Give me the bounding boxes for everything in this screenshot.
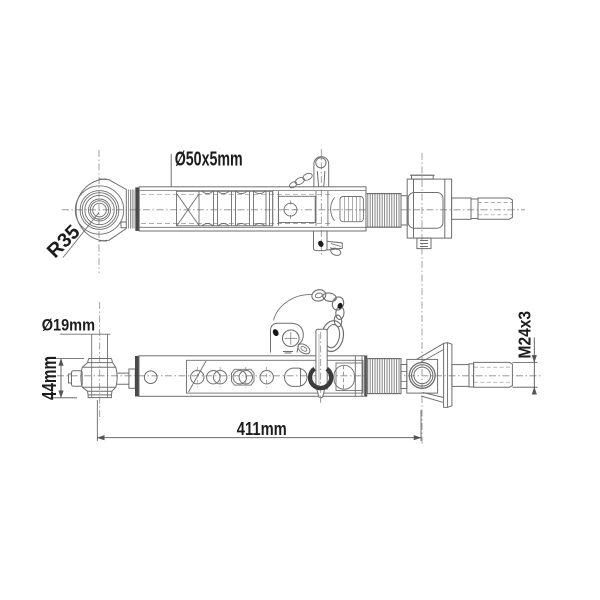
svg-text:Ø50x5mm: Ø50x5mm: [175, 148, 243, 170]
svg-text:44mm: 44mm: [39, 356, 61, 400]
svg-text:411mm: 411mm: [237, 419, 287, 439]
svg-text:M24x3: M24x3: [515, 311, 535, 359]
svg-text:R35: R35: [43, 221, 85, 263]
svg-text:Ø19mm: Ø19mm: [42, 315, 95, 334]
